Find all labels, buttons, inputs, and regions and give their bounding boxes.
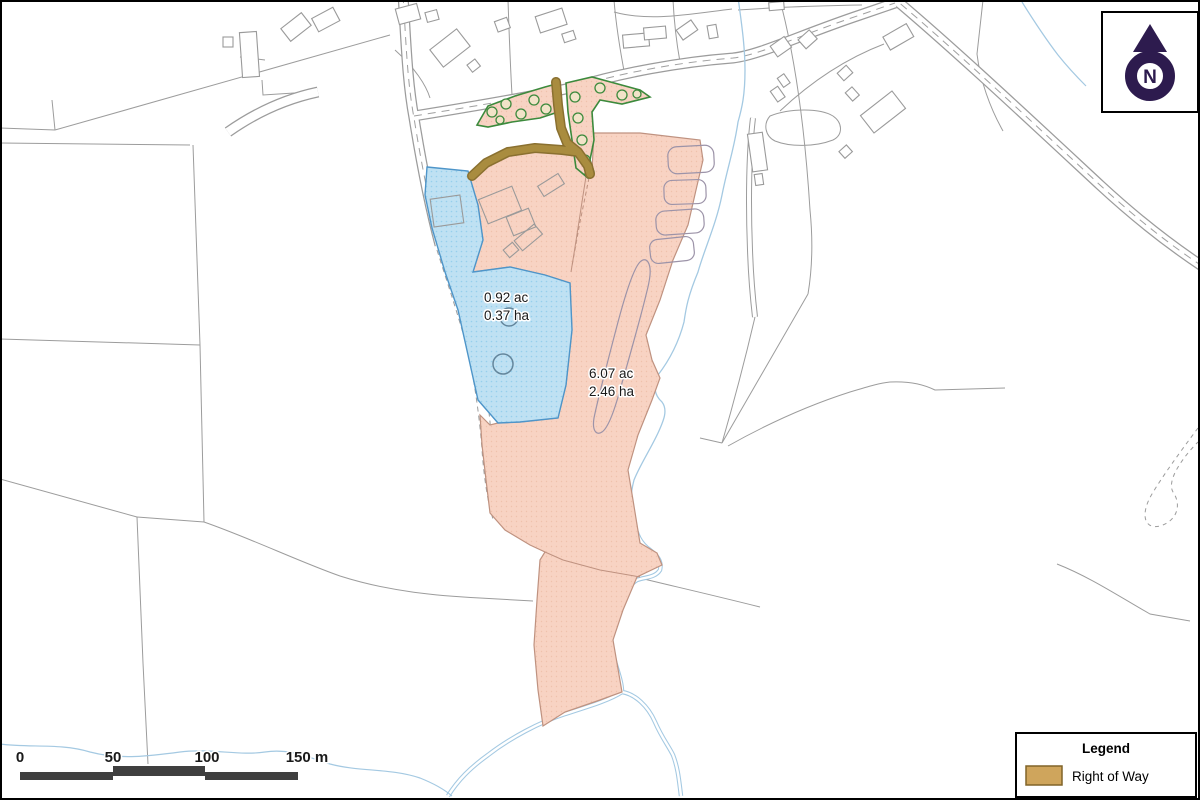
blue-parcel-hectares: 0.37 ha xyxy=(484,308,530,323)
scale-label-100: 100 xyxy=(194,749,219,766)
scale-label-0: 0 xyxy=(16,749,24,766)
legend-label-right-of-way: Right of Way xyxy=(1072,769,1149,784)
scale-segment-2 xyxy=(113,766,205,776)
map-canvas: 0.92 ac 0.37 ha 6.07 ac 2.46 ha 0 50 100… xyxy=(0,0,1200,800)
scale-segment-3 xyxy=(205,772,298,780)
scale-label-50: 50 xyxy=(105,749,122,766)
blue-parcel-acres: 0.92 ac xyxy=(484,290,529,305)
scale-label-150m: 150 m xyxy=(286,749,329,766)
north-label: N xyxy=(1143,67,1157,88)
north-arrow: N xyxy=(1102,12,1198,112)
pink-parcel-hectares: 2.46 ha xyxy=(589,384,635,399)
pink-parcel-acres: 6.07 ac xyxy=(589,366,634,381)
scale-segment-1 xyxy=(20,772,113,780)
legend: Legend Right of Way xyxy=(1016,733,1196,797)
site-plan-map: 0.92 ac 0.37 ha 6.07 ac 2.46 ha 0 50 100… xyxy=(0,0,1200,800)
legend-title: Legend xyxy=(1082,741,1130,756)
legend-swatch-right-of-way xyxy=(1026,766,1062,785)
